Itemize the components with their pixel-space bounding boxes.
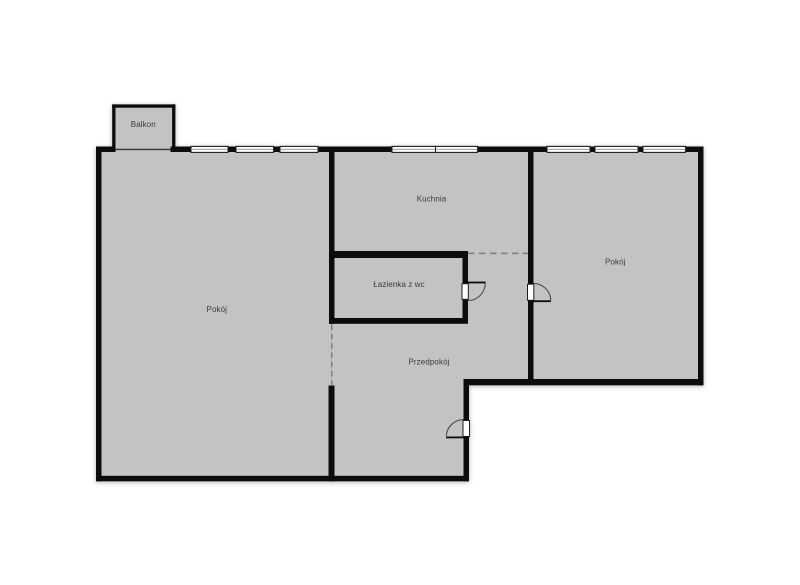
svg-text:Kuchnia: Kuchnia [417,194,447,203]
svg-text:Pokój: Pokój [207,305,228,314]
svg-text:Balkon: Balkon [131,120,156,129]
svg-text:Pokój: Pokój [605,257,626,266]
svg-text:Przedpokój: Przedpokój [408,357,449,366]
svg-text:Łazienka z wc: Łazienka z wc [373,280,425,289]
